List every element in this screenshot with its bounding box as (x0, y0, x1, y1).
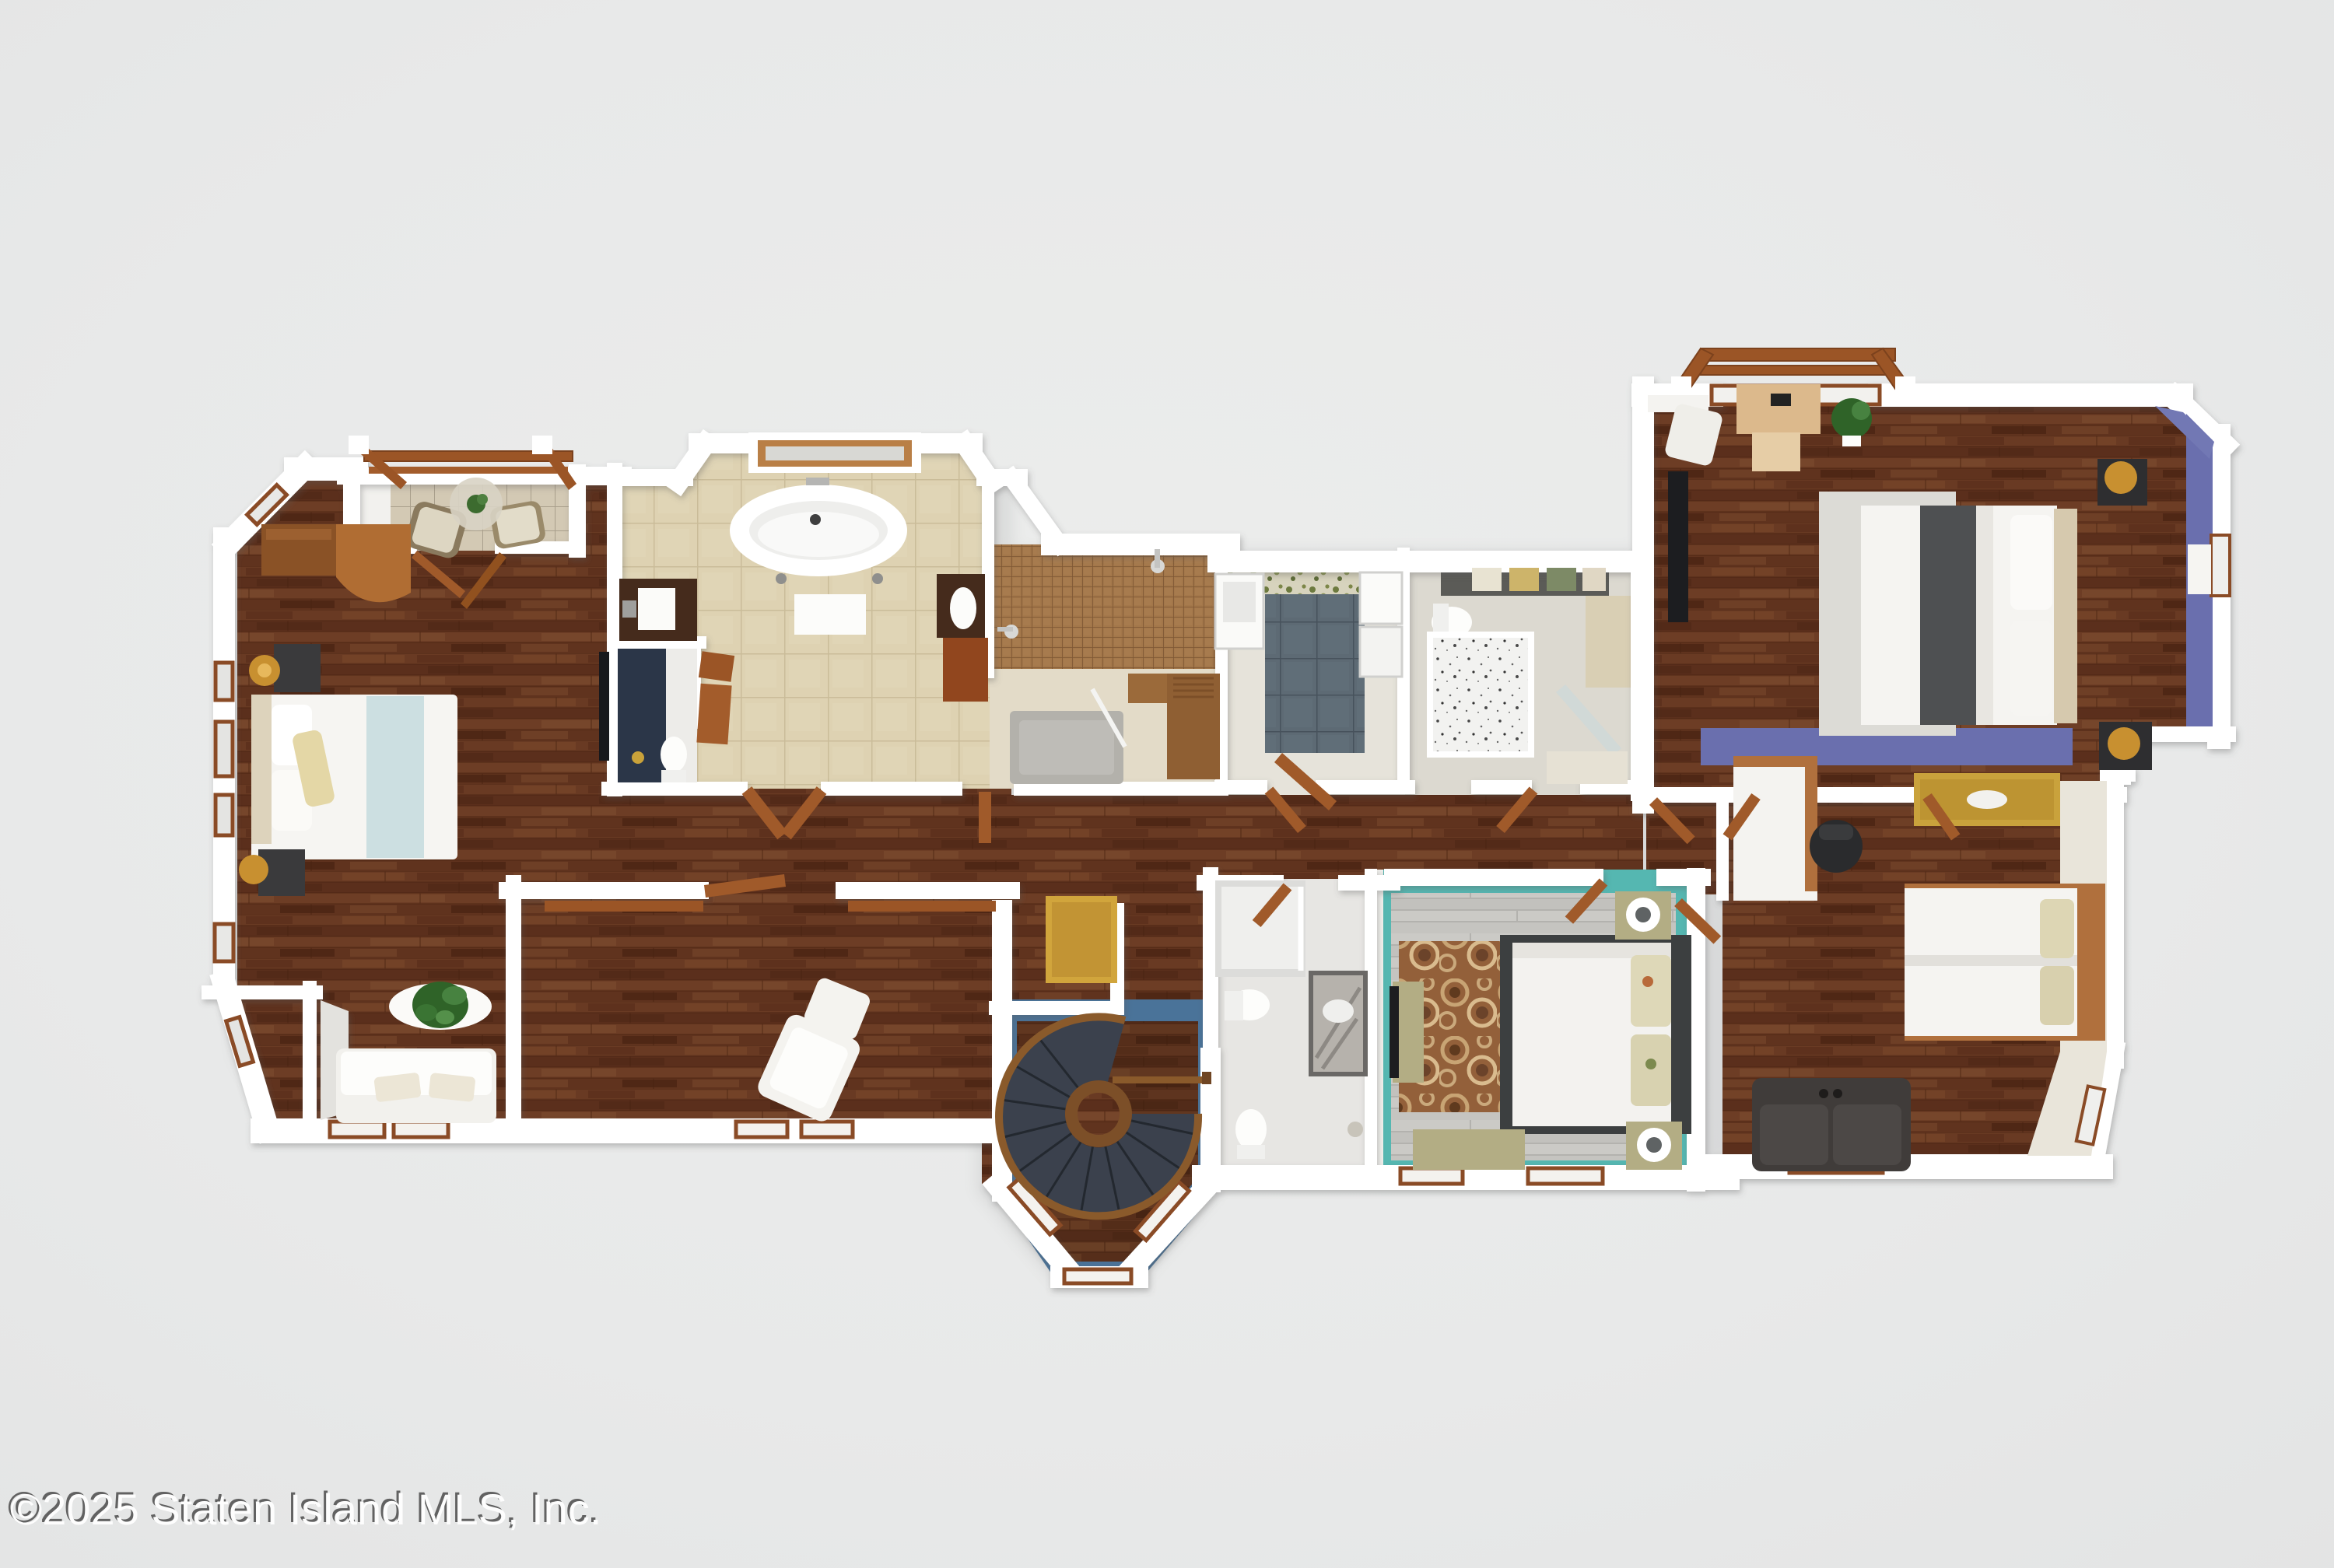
svg-text:©2025 Staten Island MLS, Inc.: ©2025 Staten Island MLS, Inc. (10, 1485, 601, 1534)
